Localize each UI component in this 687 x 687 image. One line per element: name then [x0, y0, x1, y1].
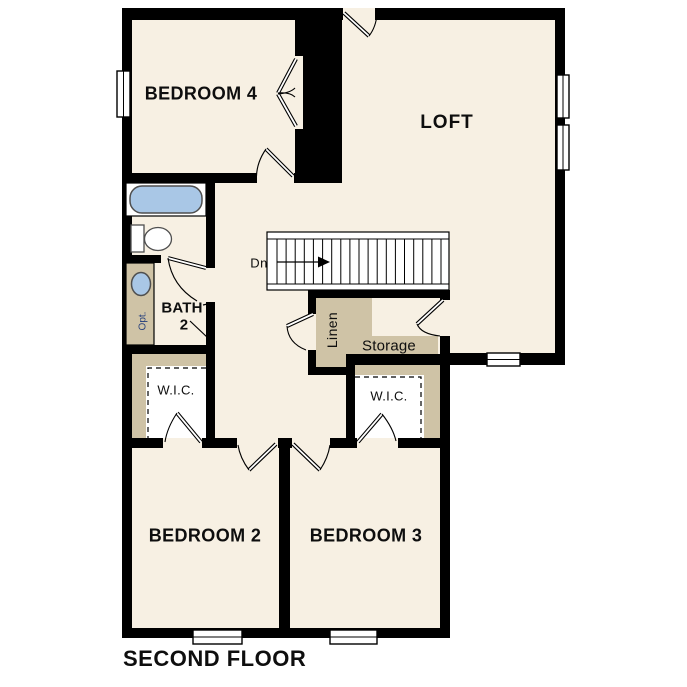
wall-wic2-west [346, 354, 355, 448]
wall-bedroom-divider [279, 438, 290, 638]
plan-title: SECOND FLOOR [123, 646, 306, 672]
floor-plan-drawing [0, 0, 687, 687]
label-linen: Linen [324, 312, 340, 348]
floor-plan: BEDROOM 4 LOFT BATH 2 W.I.C. W.I.C. Line… [0, 0, 687, 687]
label-storage: Storage [362, 338, 416, 355]
label-bath-line1: BATH [161, 300, 202, 317]
opening-bath [206, 268, 215, 302]
opening-wic1 [163, 438, 202, 448]
wall-under-stairs [308, 290, 449, 298]
opening-bedroom4-closet [295, 56, 303, 129]
wall-storage-south [348, 354, 450, 365]
label-wic2: W.I.C. [370, 389, 407, 404]
wall-east [440, 290, 450, 638]
opening-wic2 [357, 438, 398, 448]
wall-right [555, 8, 565, 365]
wic2-shelf-right [424, 362, 440, 448]
stairs-box [267, 232, 449, 290]
label-bath-line2: 2 [180, 317, 189, 334]
label-wic1: W.I.C. [157, 383, 194, 398]
label-bedroom3: BEDROOM 3 [310, 526, 423, 547]
stairs [267, 232, 449, 290]
wall-bath-mid [122, 255, 161, 263]
wall-top-right [375, 8, 565, 20]
opening-linen [308, 314, 316, 350]
wic1-shelf-left [132, 354, 146, 443]
wall-bath-south [122, 345, 215, 354]
opening-bedroom4 [257, 173, 294, 183]
label-stairs-down: Dn [250, 256, 267, 271]
label-sink-option: Opt. [138, 312, 149, 331]
wall-bath-east [206, 183, 215, 448]
opening-storage [440, 300, 450, 336]
label-loft: LOFT [420, 112, 474, 134]
label-bedroom2: BEDROOM 2 [149, 526, 262, 547]
label-bedroom4: BEDROOM 4 [145, 84, 258, 105]
wic1-interior [146, 366, 206, 438]
sink-basin [132, 273, 151, 296]
toilet-tank [131, 225, 144, 252]
wall-linen-south [308, 367, 350, 375]
bathtub [130, 186, 202, 213]
toilet-bowl [145, 228, 172, 251]
wic2-interior [355, 375, 424, 438]
